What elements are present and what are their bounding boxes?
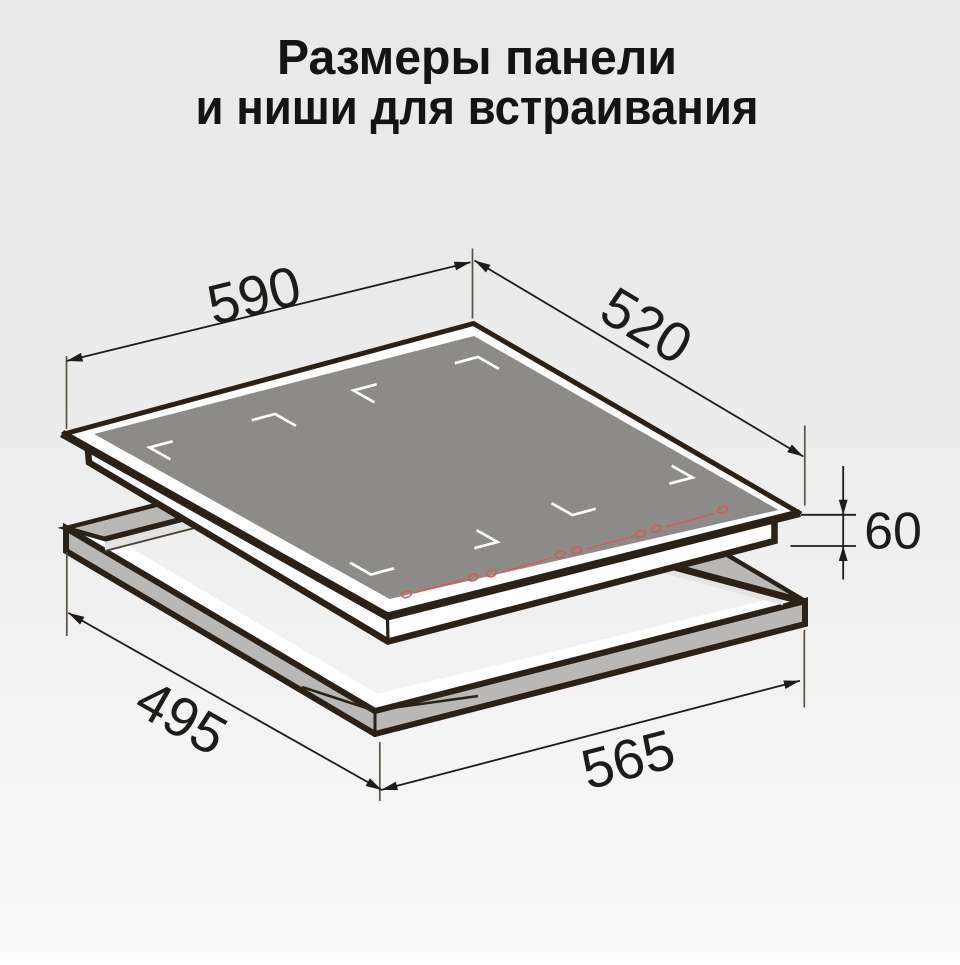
svg-text:60: 60 xyxy=(864,503,922,561)
svg-text:Размеры панели: Размеры панели xyxy=(277,31,677,85)
svg-text:и ниши для встраивания: и ниши для встраивания xyxy=(196,81,759,135)
